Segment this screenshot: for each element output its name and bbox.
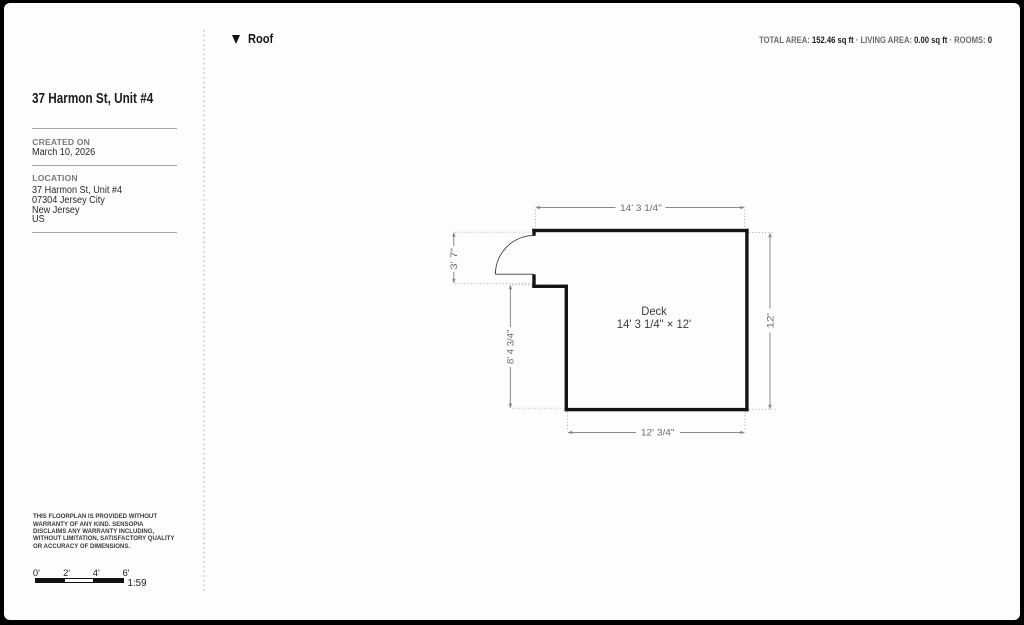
- svg-text:12': 12': [765, 313, 775, 329]
- svg-text:8' 4 3/4": 8' 4 3/4": [506, 330, 516, 365]
- svg-text:14' 3 1/4": 14' 3 1/4": [620, 203, 662, 213]
- svg-text:12' 3/4": 12' 3/4": [641, 428, 675, 438]
- svg-text:3' 7": 3' 7": [449, 248, 459, 270]
